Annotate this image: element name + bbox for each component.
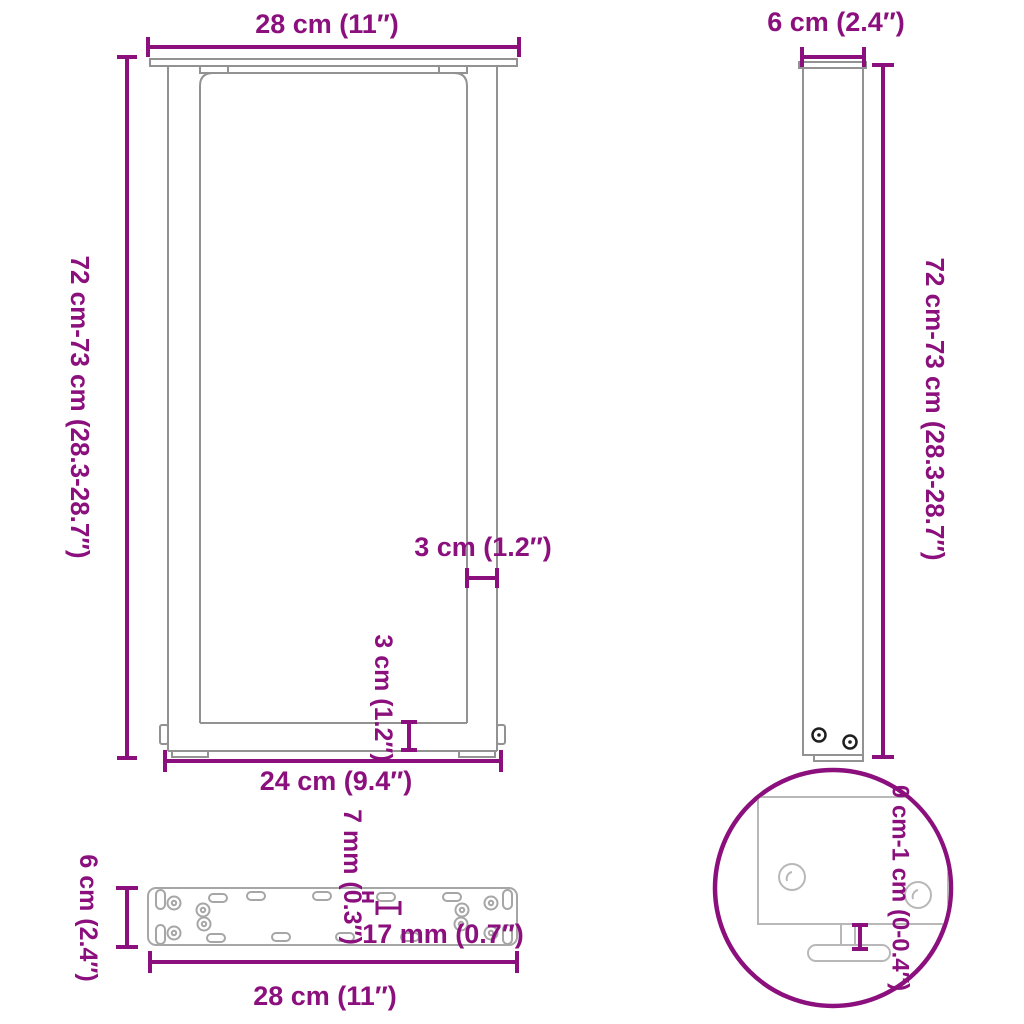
- leg-thickness-dimension: 3 cm (1.2″): [414, 532, 552, 588]
- front-width-dimension: 28 cm (11″): [148, 9, 519, 57]
- crossbar-height-dimension-label: 3 cm (1.2″): [369, 634, 397, 761]
- side-column: [803, 68, 863, 755]
- side-depth-dimension: 6 cm (2.4″): [767, 7, 905, 67]
- crossbar-height-dimension: 3 cm (1.2″): [369, 634, 417, 761]
- side-view: 6 cm (2.4″) 72 cm-73 cm (28.3-28.7″): [767, 7, 950, 761]
- dimension-diagram: 28 cm (11″) 72 cm-73 cm (28.3-28.7″) 3 c…: [0, 0, 1024, 1024]
- base-width-dimension: 24 cm (9.4″): [165, 750, 501, 796]
- front-height-dimension: 72 cm-73 cm (28.3-28.7″): [65, 57, 137, 758]
- detail-leg-corner: [758, 797, 948, 924]
- foot-adjustment-dimension-label: 0 cm-1 cm (0-0.4″): [887, 785, 914, 991]
- front-inner-opening: [200, 73, 467, 723]
- front-right-foot: [459, 751, 495, 757]
- front-height-dimension-label: 72 cm-73 cm (28.3-28.7″): [65, 256, 95, 559]
- detail-foot-base: [808, 945, 890, 961]
- side-screw-1: [813, 729, 826, 742]
- slot-length-dimension-label: 17 mm (0.7″): [362, 919, 524, 949]
- front-left-tab: [200, 66, 228, 73]
- front-view: 28 cm (11″) 72 cm-73 cm (28.3-28.7″) 3 c…: [65, 9, 552, 796]
- side-height-dimension-label: 72 cm-73 cm (28.3-28.7″): [920, 258, 950, 561]
- front-top-plate: [150, 59, 517, 66]
- front-width-dimension-label: 28 cm (11″): [255, 9, 399, 39]
- detail-circle-view: 0 cm-1 cm (0-0.4″): [715, 770, 951, 1006]
- diagram-canvas: 28 cm (11″) 72 cm-73 cm (28.3-28.7″) 3 c…: [0, 0, 1024, 1024]
- front-view-drawing: [150, 59, 517, 757]
- side-depth-dimension-label: 6 cm (2.4″): [767, 7, 905, 37]
- plate-width-dimension: 28 cm (11″): [150, 951, 517, 1011]
- front-left-side-tab: [160, 725, 168, 744]
- front-left-foot: [172, 751, 208, 757]
- detail-foot-stem: [841, 924, 855, 946]
- front-right-tab: [439, 66, 467, 73]
- base-width-dimension-label: 24 cm (9.4″): [260, 766, 413, 796]
- plate-width-dimension-label: 28 cm (11″): [253, 981, 397, 1011]
- plate-depth-dimension: 6 cm (2.4″): [74, 854, 138, 981]
- plate-depth-dimension-label: 6 cm (2.4″): [74, 854, 102, 981]
- side-height-dimension: 72 cm-73 cm (28.3-28.7″): [872, 65, 950, 757]
- side-foot-plate: [814, 755, 863, 761]
- leg-thickness-dimension-label: 3 cm (1.2″): [414, 532, 552, 562]
- front-right-side-tab: [497, 725, 505, 744]
- side-screw-2: [844, 736, 857, 749]
- side-view-drawing: [799, 62, 866, 761]
- plate-top-view: 6 cm (2.4″) 7 mm (0.3″) 17 mm (0.7″) 28 …: [74, 809, 524, 1011]
